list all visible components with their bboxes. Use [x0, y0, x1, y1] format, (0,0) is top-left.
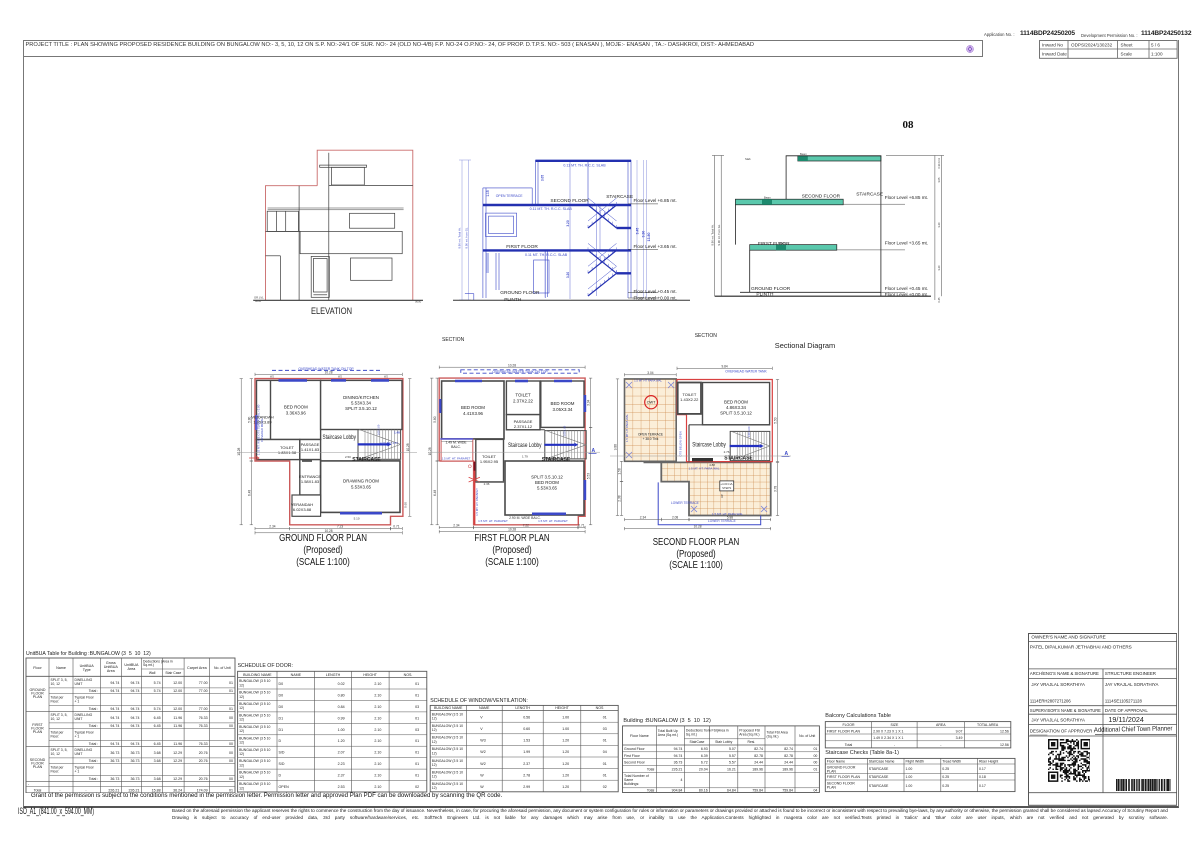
svg-text:2.10: 2.10	[374, 774, 381, 778]
svg-text:2.10: 2.10	[374, 785, 381, 789]
svg-text:5.88: 5.88	[727, 516, 733, 520]
svg-text:1.49 M. WIDE: 1.49 M. WIDE	[445, 440, 467, 444]
svg-text:Sheet: Sheet	[1120, 42, 1133, 47]
svg-text:7.22: 7.22	[523, 524, 529, 528]
svg-text:7.23: 7.23	[337, 525, 343, 529]
svg-text:TOTAL AREA: TOTAL AREA	[977, 723, 999, 727]
svg-text:1.53: 1.53	[523, 739, 530, 743]
svg-text:UNIT: UNIT	[75, 682, 83, 686]
svg-text:01: 01	[415, 751, 419, 755]
svg-text:13.80: 13.80	[647, 233, 651, 242]
svg-text:6.48: 6.48	[247, 490, 251, 496]
svg-text:4.86X3.34: 4.86X3.34	[726, 405, 747, 410]
svg-text:STAIRCASE: STAIRCASE	[869, 767, 889, 771]
svg-text:5.53: 5.53	[587, 473, 591, 479]
svg-text:10.28: 10.28	[428, 447, 432, 455]
svg-text:94.74: 94.74	[110, 716, 119, 720]
svg-text:94.74: 94.74	[110, 681, 119, 685]
svg-text:01: 01	[229, 689, 233, 693]
svg-text:2.38: 2.38	[618, 495, 622, 501]
svg-text:10.28: 10.28	[508, 528, 516, 532]
svg-text:LOWER TERRACE: LOWER TERRACE	[671, 501, 699, 505]
svg-text:24.44: 24.44	[784, 761, 793, 765]
svg-text:2.37: 2.37	[338, 774, 345, 778]
svg-text:STAIRCASE: STAIRCASE	[542, 457, 571, 463]
svg-text:FIRST FLOOR: FIRST FLOOR	[506, 244, 538, 250]
svg-text:+ 1: + 1	[75, 770, 80, 774]
svg-text:1.5 MT HT PARA WAL: 1.5 MT HT PARA WAL	[634, 378, 662, 382]
svg-text:94.74: 94.74	[110, 742, 119, 746]
svg-text:0.25: 0.25	[942, 767, 949, 771]
svg-text:-: -	[940, 743, 942, 747]
svg-text:Sq.mt.): Sq.mt.)	[143, 663, 154, 667]
svg-text:DRAWING ROOM: DRAWING ROOM	[343, 479, 379, 484]
svg-text:PLAN: PLAN	[33, 765, 43, 769]
svg-text:12): 12)	[432, 717, 437, 721]
svg-text:3.68: 3.68	[154, 777, 161, 781]
svg-text:V: V	[480, 727, 483, 731]
svg-text:PLINTH: PLINTH	[756, 292, 774, 298]
svg-text:Beam: Beam	[764, 195, 771, 199]
svg-text:2.10: 2.10	[374, 705, 381, 709]
svg-text:6.93: 6.93	[701, 747, 708, 751]
svg-text:94.74: 94.74	[110, 724, 119, 728]
svg-text:Floor Level +3.65 mt.: Floor Level +3.65 mt.	[634, 244, 677, 249]
svg-text:9.07: 9.07	[956, 729, 963, 733]
svg-text:OVERHEAD WATER TANK ON TOP: OVERHEAD WATER TANK ON TOP	[492, 370, 548, 374]
svg-text:BED ROOM: BED ROOM	[461, 405, 485, 410]
svg-text:1.00: 1.00	[562, 715, 569, 719]
svg-text:01: 01	[813, 768, 817, 772]
svg-text:94.74: 94.74	[674, 754, 683, 758]
svg-text:SPLIT 3.5.10.12: SPLIT 3.5.10.12	[345, 406, 377, 411]
svg-text:Stair Case: Stair Case	[165, 671, 181, 675]
svg-text:0.17: 0.17	[979, 784, 986, 788]
svg-text:1.00: 1.00	[562, 727, 569, 731]
svg-text:3.20: 3.20	[566, 272, 570, 278]
svg-text:3.49: 3.49	[956, 736, 963, 740]
svg-text:1.5 MT. HT. PARAPET: 1.5 MT. HT. PARAPET	[538, 519, 568, 523]
svg-text:AREA: AREA	[936, 723, 946, 727]
svg-text:-: -	[28, 782, 30, 786]
svg-text:77.00: 77.00	[199, 707, 208, 711]
svg-text:1.58: 1.58	[618, 468, 622, 474]
svg-text:76.33: 76.33	[199, 716, 208, 720]
svg-text:D0: D0	[279, 705, 284, 709]
svg-text:11.96: 11.96	[173, 724, 182, 728]
svg-text:3.05: 3.05	[541, 175, 545, 181]
svg-text:12): 12)	[432, 728, 437, 732]
svg-text:Total :: Total :	[89, 777, 99, 781]
svg-text:5.74: 5.74	[154, 707, 161, 711]
svg-text:94.74: 94.74	[131, 689, 140, 693]
svg-text:Floor Name: Floor Name	[630, 734, 649, 738]
svg-text:S/D: S/D	[279, 762, 285, 766]
svg-text:94.74: 94.74	[131, 707, 140, 711]
svg-text:A: A	[592, 448, 596, 454]
svg-text:BED ROOM: BED ROOM	[724, 399, 748, 404]
svg-text:03: 03	[415, 728, 419, 732]
svg-text:94.74: 94.74	[131, 681, 140, 685]
svg-text:Floor Level +6.85 mt.: Floor Level +6.85 mt.	[634, 198, 677, 203]
svg-text:20.76: 20.76	[199, 751, 208, 755]
svg-text:01: 01	[603, 715, 607, 719]
svg-text:StairCase Name: StairCase Name	[869, 760, 895, 764]
svg-text:1.00 1.00: 1.00 1.00	[376, 424, 380, 435]
svg-text:Floor Level +0.00 mt.: Floor Level +0.00 mt.	[885, 292, 928, 297]
svg-text:3.78: 3.78	[774, 486, 778, 492]
svg-text:00: 00	[229, 742, 233, 746]
svg-text:11.96: 11.96	[173, 742, 182, 746]
svg-text:9.90 mt. from GL: 9.90 mt. from GL	[465, 227, 469, 248]
svg-text:1.79: 1.79	[522, 455, 528, 459]
svg-text:1.41X1.83: 1.41X1.83	[301, 447, 320, 452]
svg-text:12): 12)	[239, 763, 244, 767]
svg-text:W: W	[480, 773, 484, 777]
svg-text:-: -	[894, 743, 896, 747]
svg-text:00: 00	[229, 777, 233, 781]
svg-text:PLAN: PLAN	[33, 695, 43, 699]
svg-text:01: 01	[603, 773, 607, 777]
svg-text:BUILDING NAME: BUILDING NAME	[243, 673, 272, 677]
svg-text:1.5 MT. HT. PARAPET: 1.5 MT. HT. PARAPET	[442, 457, 471, 461]
svg-text:STAIRCASE: STAIRCASE	[869, 784, 889, 788]
svg-text:9.90 mt. Total Ht.: 9.90 mt. Total Ht.	[458, 227, 462, 248]
svg-text:Floor Level +3.65 mt.: Floor Level +3.65 mt.	[885, 241, 928, 246]
svg-text:77.00: 77.00	[199, 689, 208, 693]
svg-text:189.96: 189.96	[752, 768, 763, 772]
svg-text:2.10: 2.10	[374, 751, 381, 755]
svg-text:OTS BELOW OPEN: OTS BELOW OPEN	[679, 431, 683, 456]
svg-text:BED ROOM: BED ROOM	[284, 405, 308, 410]
svg-text:10, 12: 10, 12	[51, 682, 61, 686]
svg-text:0.18: 0.18	[979, 775, 986, 779]
svg-text:12): 12)	[239, 752, 244, 756]
svg-text:01: 01	[415, 694, 419, 698]
svg-text:1.00: 1.00	[906, 775, 913, 779]
svg-text:1.00: 1.00	[906, 784, 913, 788]
svg-text:UNIT: UNIT	[75, 717, 83, 721]
svg-text:12): 12)	[239, 729, 244, 733]
svg-text:FIRST FLOOR PLAN: FIRST FLOOR PLAN	[827, 729, 861, 733]
svg-text:Total: Total	[845, 743, 853, 747]
svg-text:2.34: 2.34	[453, 524, 459, 528]
svg-text:00: 00	[229, 724, 233, 728]
svg-text:Carpet Area: Carpet Area	[187, 666, 208, 670]
svg-text:BED ROOM: BED ROOM	[535, 480, 559, 485]
svg-text:1.20: 1.20	[562, 762, 569, 766]
svg-text:Inward Date: Inward Date	[1042, 51, 1067, 56]
svg-text:2.53: 2.53	[338, 785, 345, 789]
svg-text:00: 00	[229, 716, 233, 720]
svg-text:10, 12: 10, 12	[51, 717, 61, 721]
svg-text:12): 12)	[239, 683, 244, 687]
svg-text:12): 12)	[239, 741, 244, 745]
svg-text:LENGTH: LENGTH	[515, 706, 530, 710]
svg-text:No. of Unit: No. of Unit	[214, 666, 231, 670]
svg-text:36.73: 36.73	[110, 751, 119, 755]
svg-text:12.29: 12.29	[173, 759, 182, 763]
svg-text:02: 02	[603, 785, 607, 789]
svg-text:759.84: 759.84	[752, 788, 763, 792]
svg-text:24.44: 24.44	[754, 761, 763, 765]
svg-text:6.48: 6.48	[433, 490, 437, 496]
svg-text:82.78: 82.78	[754, 754, 763, 758]
svg-text:19/11/2024: 19/11/2024	[1108, 715, 1143, 724]
svg-text:76.33: 76.33	[199, 724, 208, 728]
svg-text:0.11 MT. TH. R.C.C. SLAB: 0.11 MT. TH. R.C.C. SLAB	[525, 253, 568, 257]
svg-text:03: 03	[603, 727, 607, 731]
svg-text:STAIRCASE: STAIRCASE	[856, 192, 883, 198]
svg-text:Floor:: Floor:	[51, 700, 60, 704]
svg-text:20.76: 20.76	[199, 759, 208, 763]
svg-text:2.10: 2.10	[374, 694, 381, 698]
svg-text:12): 12)	[432, 751, 437, 755]
svg-text:Floor Level +0.45 mt.: Floor Level +0.45 mt.	[634, 289, 677, 294]
svg-text:80.16: 80.16	[699, 788, 708, 792]
svg-text:12): 12)	[432, 786, 437, 790]
svg-text:94.74: 94.74	[131, 742, 140, 746]
svg-text:3.04: 3.04	[647, 371, 653, 375]
svg-text:2.34: 2.34	[269, 525, 275, 529]
svg-text:Area: Area	[128, 667, 137, 671]
svg-text:01: 01	[415, 739, 419, 743]
svg-text:ODPS/2024/130232: ODPS/2024/130232	[1071, 42, 1113, 47]
svg-text:BUILDING NAME: BUILDING NAME	[434, 706, 463, 710]
svg-text:1.20: 1.20	[338, 739, 345, 743]
svg-text:94.74: 94.74	[131, 724, 140, 728]
svg-text:0.80: 0.80	[338, 694, 345, 698]
svg-text:77.00: 77.00	[199, 681, 208, 685]
svg-text:Total :: Total :	[89, 724, 99, 728]
svg-text:0000: 0000	[255, 299, 262, 303]
svg-text:Name: Name	[56, 666, 66, 670]
svg-text:0.02: 0.02	[338, 682, 345, 686]
svg-text:1.5 MT. HT. PARA WAL: 1.5 MT. HT. PARA WAL	[688, 467, 719, 471]
svg-text:Floor:: Floor:	[51, 770, 60, 774]
svg-text:3.34: 3.34	[587, 399, 591, 405]
svg-text:NOS.: NOS.	[404, 673, 413, 677]
svg-text:1.99: 1.99	[523, 750, 530, 754]
svg-text:No. of Unit: No. of Unit	[799, 734, 815, 738]
svg-text:+ 1: + 1	[75, 735, 80, 739]
svg-text:1114ERH2807271206: 1114ERH2807271206	[1029, 698, 1070, 703]
svg-text:0.71: 0.71	[578, 524, 584, 528]
svg-text:94.74: 94.74	[131, 716, 140, 720]
svg-text:2.50: 2.50	[345, 455, 351, 459]
svg-text:12.56: 12.56	[1000, 743, 1009, 747]
svg-text:1.43X2.22: 1.43X2.22	[680, 397, 699, 402]
svg-text:0.25: 0.25	[942, 784, 949, 788]
svg-text:Inward No: Inward No	[1042, 42, 1063, 47]
svg-text:5 / 6: 5 / 6	[1151, 42, 1160, 47]
svg-text:6.45: 6.45	[154, 716, 161, 720]
svg-text:0.11 MT. TH. R.C.C. SLAB: 0.11 MT. TH. R.C.C. SLAB	[563, 163, 606, 167]
svg-text:SUPERVISOR'S NAME & SIGNATURE: SUPERVISOR'S NAME & SIGNATURE	[1029, 708, 1100, 713]
svg-text:Floor Level +0.45 mt.: Floor Level +0.45 mt.	[885, 286, 928, 291]
svg-text:PLAN: PLAN	[827, 770, 837, 774]
svg-text:Flight Width: Flight Width	[906, 760, 925, 764]
svg-text:16.21: 16.21	[727, 768, 736, 772]
svg-text:2.07: 2.07	[338, 751, 345, 755]
svg-text:0.84: 0.84	[338, 705, 345, 709]
svg-text:Area (Sq.mt.): Area (Sq.mt.)	[658, 733, 678, 737]
svg-text:NAME: NAME	[479, 706, 490, 710]
svg-text:189.96: 189.96	[782, 768, 793, 772]
svg-text:Area (Sq.mt.): Area (Sq.mt.)	[739, 733, 759, 737]
svg-text:0.60: 0.60	[404, 502, 408, 508]
svg-text:Wall: Wall	[149, 671, 156, 675]
svg-text:Resi.: Resi.	[748, 740, 756, 744]
svg-text:OWT: OWT	[647, 401, 656, 405]
svg-text:UNIT: UNIT	[75, 752, 83, 756]
svg-text:6.02X3.88: 6.02X3.88	[293, 507, 312, 512]
svg-text:6.45: 6.45	[154, 742, 161, 746]
svg-text:0.56: 0.56	[523, 715, 530, 719]
svg-text:36.73: 36.73	[131, 777, 140, 781]
svg-text:12): 12)	[239, 718, 244, 722]
svg-text:Staircase Lobby: Staircase Lobby	[692, 443, 726, 449]
svg-text:12): 12)	[239, 786, 244, 790]
svg-text:Stair Lobby: Stair Lobby	[715, 740, 732, 744]
svg-text:64.84: 64.84	[727, 788, 736, 792]
svg-text:2.78: 2.78	[523, 773, 530, 777]
svg-text:+ 38.0 Thik: + 38.0 Thik	[643, 437, 659, 441]
svg-text:1.5 MT HT PARA WAL: 1.5 MT HT PARA WAL	[625, 414, 629, 442]
svg-text:D0: D0	[279, 682, 284, 686]
svg-text:12): 12)	[432, 763, 437, 767]
svg-text:Ground Floor: Ground Floor	[624, 747, 645, 751]
svg-text:W: W	[480, 785, 484, 789]
svg-text:2.08: 2.08	[672, 516, 678, 520]
svg-text:94.74: 94.74	[674, 747, 683, 751]
svg-text:1.00: 1.00	[906, 767, 913, 771]
svg-text:HEIGHT: HEIGHT	[363, 673, 377, 677]
svg-text:11.96: 11.96	[173, 716, 182, 720]
svg-text:OPEN TERRACE: OPEN TERRACE	[496, 194, 523, 198]
svg-text:STRUCTURE ENGINEER: STRUCTURE ENGINEER	[1104, 671, 1155, 676]
svg-text:12): 12)	[239, 775, 244, 779]
svg-text:JAY VRAJLAL SORATHIYA: JAY VRAJLAL SORATHIYA	[1031, 717, 1085, 722]
svg-text:Tread Width: Tread Width	[942, 760, 961, 764]
svg-text:D: D	[279, 774, 282, 778]
svg-text:12): 12)	[432, 740, 437, 744]
svg-text:STAIRCASE: STAIRCASE	[606, 194, 633, 200]
svg-text:SPLIT 3.5.10.12: SPLIT 3.5.10.12	[720, 411, 752, 416]
svg-text:4.41X3.96: 4.41X3.96	[463, 411, 484, 416]
svg-text:2.76: 2.76	[724, 450, 730, 454]
svg-text:FLOOR: FLOOR	[842, 723, 855, 727]
svg-text:82.78: 82.78	[784, 754, 793, 758]
svg-text:01: 01	[229, 681, 233, 685]
svg-text:10.28: 10.28	[325, 371, 333, 375]
svg-text:Total :: Total :	[89, 689, 99, 693]
svg-text:03: 03	[415, 705, 419, 709]
svg-text:DESIGNATION OF APPROVER :: DESIGNATION OF APPROVER :	[1029, 729, 1094, 734]
svg-text:2.99: 2.99	[523, 785, 530, 789]
svg-text:JAY VRAJLAL SORATHIYA: JAY VRAJLAL SORATHIYA	[1104, 682, 1158, 687]
svg-text:5.53X3.34: 5.53X3.34	[351, 401, 372, 406]
svg-text:TOILET: TOILET	[515, 393, 531, 398]
svg-text:94.74: 94.74	[110, 707, 119, 711]
svg-text:SECOND FLOOR: SECOND FLOOR	[802, 194, 841, 200]
svg-text:BED ROOM: BED ROOM	[551, 401, 575, 406]
svg-text:01: 01	[415, 762, 419, 766]
svg-text:Floor Level +6.85 mt.: Floor Level +6.85 mt.	[885, 195, 928, 200]
svg-text:Total :: Total :	[89, 759, 99, 763]
svg-text:JAY VRAJLAL SORATHIYA: JAY VRAJLAL SORATHIYA	[1031, 682, 1085, 687]
svg-text:OWNER'S NAME AND SIGNATURE: OWNER'S NAME AND SIGNATURE	[1031, 635, 1105, 640]
svg-text:NOS: NOS	[596, 706, 604, 710]
svg-text:5.10: 5.10	[354, 517, 360, 521]
svg-text:0.11: 0.11	[937, 158, 941, 163]
svg-text:2.37: 2.37	[523, 762, 530, 766]
svg-text:12.29: 12.29	[173, 751, 182, 755]
svg-text:3.05X3.34: 3.05X3.34	[552, 407, 573, 412]
svg-text:Total :: Total :	[89, 707, 99, 711]
svg-text:20.76: 20.76	[199, 777, 208, 781]
svg-text:1.00: 1.00	[338, 728, 345, 732]
svg-text:SPLIT 3.5.10.12: SPLIT 3.5.10.12	[531, 474, 563, 479]
svg-text:StairCase: StairCase	[690, 740, 705, 744]
svg-text:DINING/KITCHEN: DINING/KITCHEN	[343, 395, 379, 400]
svg-text:4: 4	[680, 778, 682, 782]
svg-text:5.57: 5.57	[729, 754, 736, 758]
svg-text:6.45: 6.45	[154, 724, 161, 728]
svg-text:Scale: Scale	[1120, 51, 1132, 56]
svg-text:5.57: 5.57	[729, 761, 736, 765]
svg-text:5.50: 5.50	[774, 417, 778, 423]
svg-text:D1: D1	[279, 716, 284, 720]
svg-text:0.34: 0.34	[937, 163, 941, 169]
svg-text:0.99: 0.99	[338, 716, 345, 720]
svg-text:4.88: 4.88	[709, 463, 715, 467]
svg-text:94.74: 94.74	[110, 689, 119, 693]
svg-text:+ 1: + 1	[75, 700, 80, 704]
svg-text:20.04: 20.04	[699, 768, 708, 772]
svg-text:12): 12)	[432, 775, 437, 779]
svg-text:10.28: 10.28	[694, 525, 702, 529]
svg-text:PLAN: PLAN	[33, 730, 43, 734]
svg-text:10.28: 10.28	[237, 447, 241, 455]
svg-text:12.00: 12.00	[173, 681, 182, 685]
svg-text:GROUND FLOOR: GROUND FLOOR	[751, 286, 791, 292]
svg-text:9.84: 9.84	[721, 364, 727, 368]
svg-text:SECOND FLOOR: SECOND FLOOR	[550, 198, 589, 204]
svg-text:0000: 0000	[415, 299, 422, 303]
svg-text:Type: Type	[83, 668, 91, 672]
svg-text:3.36X3.96: 3.36X3.96	[286, 410, 307, 415]
svg-text:2.37X1.12: 2.37X1.12	[514, 424, 533, 429]
svg-text:UP: UP	[720, 494, 724, 498]
svg-text:PLINTH: PLINTH	[504, 297, 522, 303]
svg-text:Floor: Floor	[33, 666, 42, 670]
svg-text:2.23: 2.23	[338, 762, 345, 766]
svg-text:1.5 MT. HT. PARAPET: 1.5 MT. HT. PARAPET	[475, 488, 479, 516]
svg-text:36.73: 36.73	[110, 777, 119, 781]
svg-text:1.00 1.00: 1.00 1.00	[747, 426, 751, 437]
svg-text:0.11 MT. TH. R.C.C. SLAB: 0.11 MT. TH. R.C.C. SLAB	[530, 207, 573, 211]
svg-text:2.10: 2.10	[374, 762, 381, 766]
svg-text:1.95X2.95: 1.95X2.95	[480, 459, 499, 464]
svg-text:Slab: Slab	[745, 157, 751, 161]
svg-text:3.20: 3.20	[937, 265, 941, 271]
svg-text:01: 01	[603, 739, 607, 743]
svg-text:3.20: 3.20	[566, 220, 570, 226]
svg-text:1.15: 1.15	[486, 190, 490, 196]
svg-text:00: 00	[813, 761, 817, 765]
svg-text:ARCH/ENG'S NAME & SIGNATURE: ARCH/ENG'S NAME & SIGNATURE	[1029, 671, 1098, 676]
